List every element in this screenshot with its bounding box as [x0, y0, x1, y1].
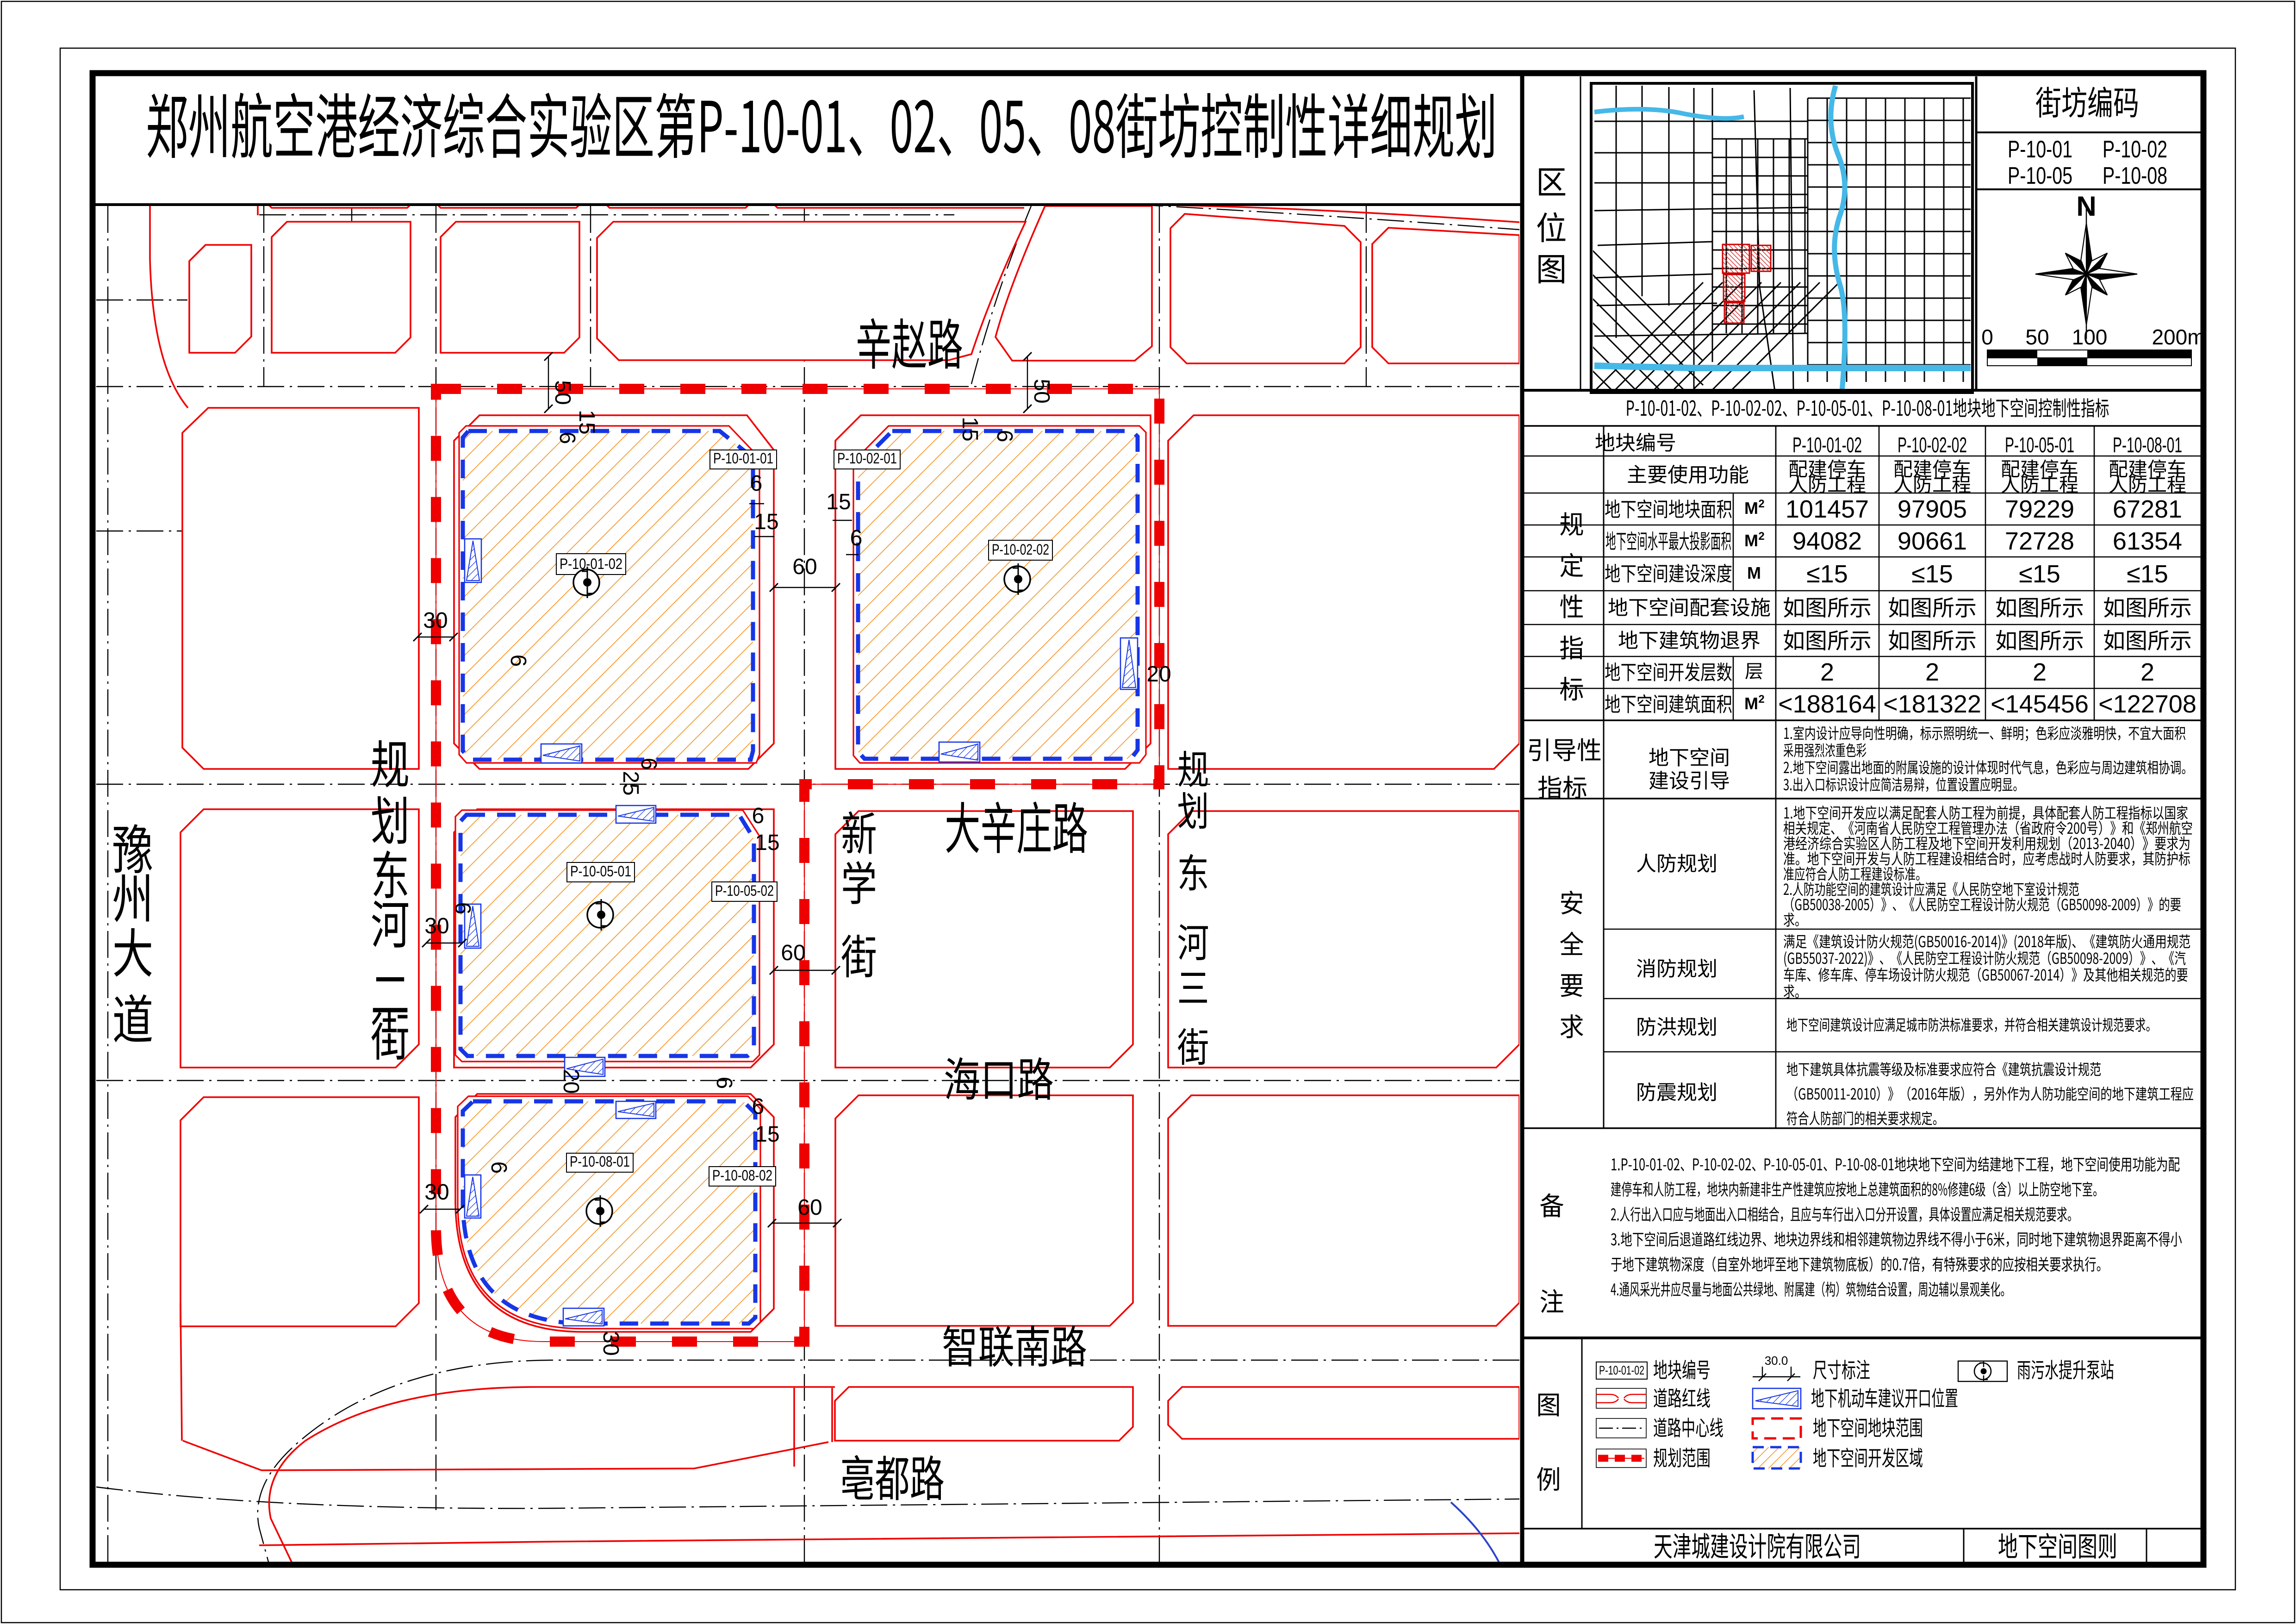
svg-text:P-10-08-01: P-10-08-01: [2113, 433, 2182, 457]
svg-text:6: 6: [752, 1094, 765, 1119]
svg-text:P-10-05-01: P-10-05-01: [2005, 433, 2074, 457]
svg-text:<145456: <145456: [1991, 690, 2089, 718]
svg-text:79229: 79229: [2005, 495, 2074, 523]
svg-text:30.0: 30.0: [1765, 1354, 1788, 1368]
svg-text:2: 2: [1758, 530, 1764, 543]
svg-text:≤15: ≤15: [2019, 560, 2060, 588]
svg-text:6: 6: [752, 804, 765, 828]
svg-text:50: 50: [2025, 325, 2049, 349]
svg-text:20: 20: [559, 1069, 583, 1093]
svg-text:60: 60: [797, 1195, 822, 1220]
svg-text:6: 6: [555, 432, 579, 444]
svg-text:M: M: [1744, 694, 1758, 713]
svg-text:30: 30: [424, 914, 449, 938]
svg-text:61354: 61354: [2113, 527, 2182, 555]
svg-text:15: 15: [958, 417, 982, 441]
svg-text:67281: 67281: [2113, 495, 2182, 523]
svg-text:2: 2: [1758, 693, 1764, 706]
svg-text:P-10-01-02: P-10-01-02: [1792, 433, 1862, 457]
svg-text:<181322: <181322: [1883, 690, 1981, 718]
svg-text:15: 15: [826, 490, 851, 514]
svg-text:P-10-02-02: P-10-02-02: [992, 541, 1049, 558]
svg-text:P-10-01-01: P-10-01-01: [713, 450, 773, 467]
svg-text:P-10-08: P-10-08: [2103, 162, 2167, 189]
svg-text:2: 2: [1758, 498, 1764, 510]
svg-text:M: M: [1747, 563, 1761, 582]
svg-text:25: 25: [618, 771, 643, 795]
svg-text:P-10-05-02: P-10-05-02: [715, 882, 774, 899]
svg-text:≤15: ≤15: [2127, 560, 2168, 588]
svg-text:30: 30: [598, 1331, 623, 1355]
svg-text:50: 50: [1029, 379, 1054, 403]
svg-text:100: 100: [2072, 325, 2108, 349]
svg-text:6: 6: [506, 655, 530, 667]
svg-text:15: 15: [755, 1122, 779, 1147]
svg-text:50: 50: [550, 380, 575, 405]
svg-text:P-10-08-02: P-10-08-02: [712, 1167, 772, 1184]
svg-text:P-10-05-01: P-10-05-01: [570, 863, 631, 880]
svg-text:6: 6: [486, 1162, 511, 1174]
svg-text:6: 6: [750, 471, 763, 496]
svg-text:<188164: <188164: [1778, 690, 1876, 718]
svg-text:≤15: ≤15: [1911, 560, 1953, 588]
svg-text:15: 15: [755, 831, 779, 855]
svg-text:M: M: [1744, 531, 1758, 550]
svg-text:P-10-01-02: P-10-01-02: [1599, 1363, 1644, 1377]
svg-text:2: 2: [2033, 658, 2047, 686]
svg-text:15: 15: [574, 410, 599, 434]
svg-text:200m: 200m: [2152, 325, 2205, 349]
svg-text:20: 20: [1146, 662, 1171, 687]
svg-text:60: 60: [792, 555, 817, 579]
svg-text:P-10-05: P-10-05: [2008, 162, 2072, 189]
svg-text:6: 6: [712, 1077, 736, 1089]
svg-text:97905: 97905: [1898, 495, 1967, 523]
svg-text:101457: 101457: [1786, 495, 1869, 523]
svg-text:P-10-01: P-10-01: [2008, 136, 2072, 163]
svg-text:60: 60: [781, 941, 805, 965]
svg-text:6: 6: [992, 430, 1017, 443]
svg-text:15: 15: [754, 510, 778, 534]
svg-text:P-10-02-02: P-10-02-02: [1898, 433, 1967, 457]
svg-text:2: 2: [1925, 658, 1939, 686]
svg-text:6: 6: [850, 526, 863, 550]
svg-text:M: M: [1744, 499, 1758, 518]
svg-text:30: 30: [423, 608, 448, 633]
svg-text:6: 6: [636, 758, 661, 770]
svg-text:≤15: ≤15: [1806, 560, 1848, 588]
svg-text:0: 0: [1981, 325, 1993, 349]
svg-text:N: N: [2076, 191, 2096, 222]
svg-text:30: 30: [424, 1180, 449, 1205]
svg-text:P-10-02: P-10-02: [2103, 136, 2167, 163]
svg-text:72728: 72728: [2005, 527, 2074, 555]
svg-text:6: 6: [450, 902, 475, 915]
svg-text:2: 2: [2140, 658, 2154, 686]
svg-text:94082: 94082: [1792, 527, 1862, 555]
svg-text:<122708: <122708: [2098, 690, 2196, 718]
svg-text:P-10-08-01: P-10-08-01: [570, 1153, 630, 1170]
svg-text:P-10-02-01: P-10-02-01: [837, 450, 897, 467]
svg-text:90661: 90661: [1898, 527, 1967, 555]
svg-text:2: 2: [1820, 658, 1834, 686]
